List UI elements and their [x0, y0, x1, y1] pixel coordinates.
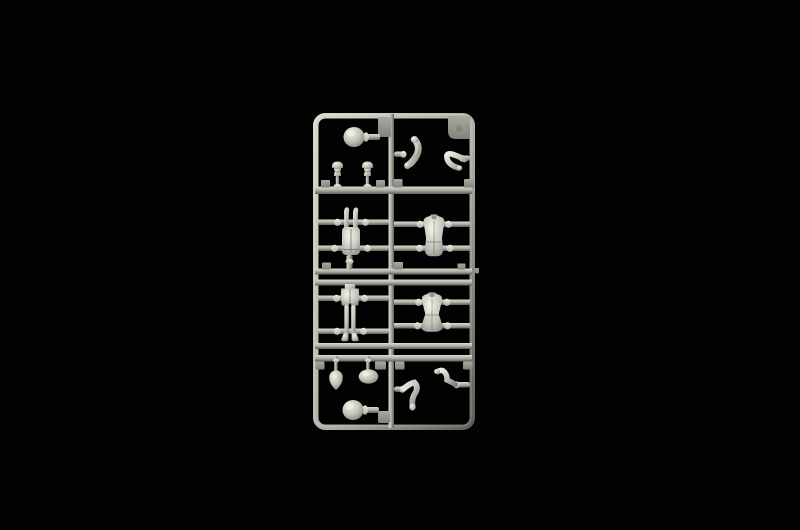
- gate-stub: [445, 221, 452, 228]
- gate-stub: [362, 219, 369, 226]
- gate-stub: [334, 219, 341, 226]
- sprue-tab: [394, 179, 403, 188]
- gate-stub: [333, 295, 340, 302]
- sprue-tab: [375, 362, 386, 370]
- sprue-tab: [464, 179, 474, 188]
- gate-stub: [401, 151, 407, 158]
- sprue-tab: [321, 180, 330, 188]
- divider-3a: [315, 343, 472, 349]
- gate-stub: [361, 295, 368, 302]
- gate-stub: [364, 245, 371, 252]
- gate-stub: [334, 328, 341, 335]
- gate-stub: [416, 245, 423, 252]
- divider-2b: [315, 280, 472, 286]
- sprue-tab: [376, 180, 385, 188]
- gate-stub: [417, 221, 424, 228]
- cut-gate-nub: [475, 268, 479, 274]
- sprue-tab: [458, 264, 466, 270]
- divider-2a: [315, 269, 472, 275]
- gate-stub: [414, 322, 421, 329]
- sprue-tab: [316, 362, 325, 370]
- gate-stub: [447, 245, 454, 252]
- gate-stub: [346, 259, 354, 264]
- sprue-tab: [378, 411, 390, 423]
- gate-stub: [360, 328, 367, 335]
- sprue-tab: [463, 362, 473, 370]
- gate-stub: [444, 322, 451, 329]
- part-torso-upper: [424, 215, 445, 257]
- sprue-photo: [0, 0, 800, 530]
- gate-stub: [331, 245, 338, 252]
- sprue-tab: [378, 117, 391, 137]
- sprue-tab: [395, 362, 405, 370]
- gate-stub: [444, 299, 451, 306]
- sprue-tab: [322, 263, 331, 270]
- gate-stub: [415, 299, 422, 306]
- sprue-tab: [394, 262, 404, 270]
- photo-stage: [0, 0, 800, 530]
- ejector-pin-mark: [455, 124, 464, 133]
